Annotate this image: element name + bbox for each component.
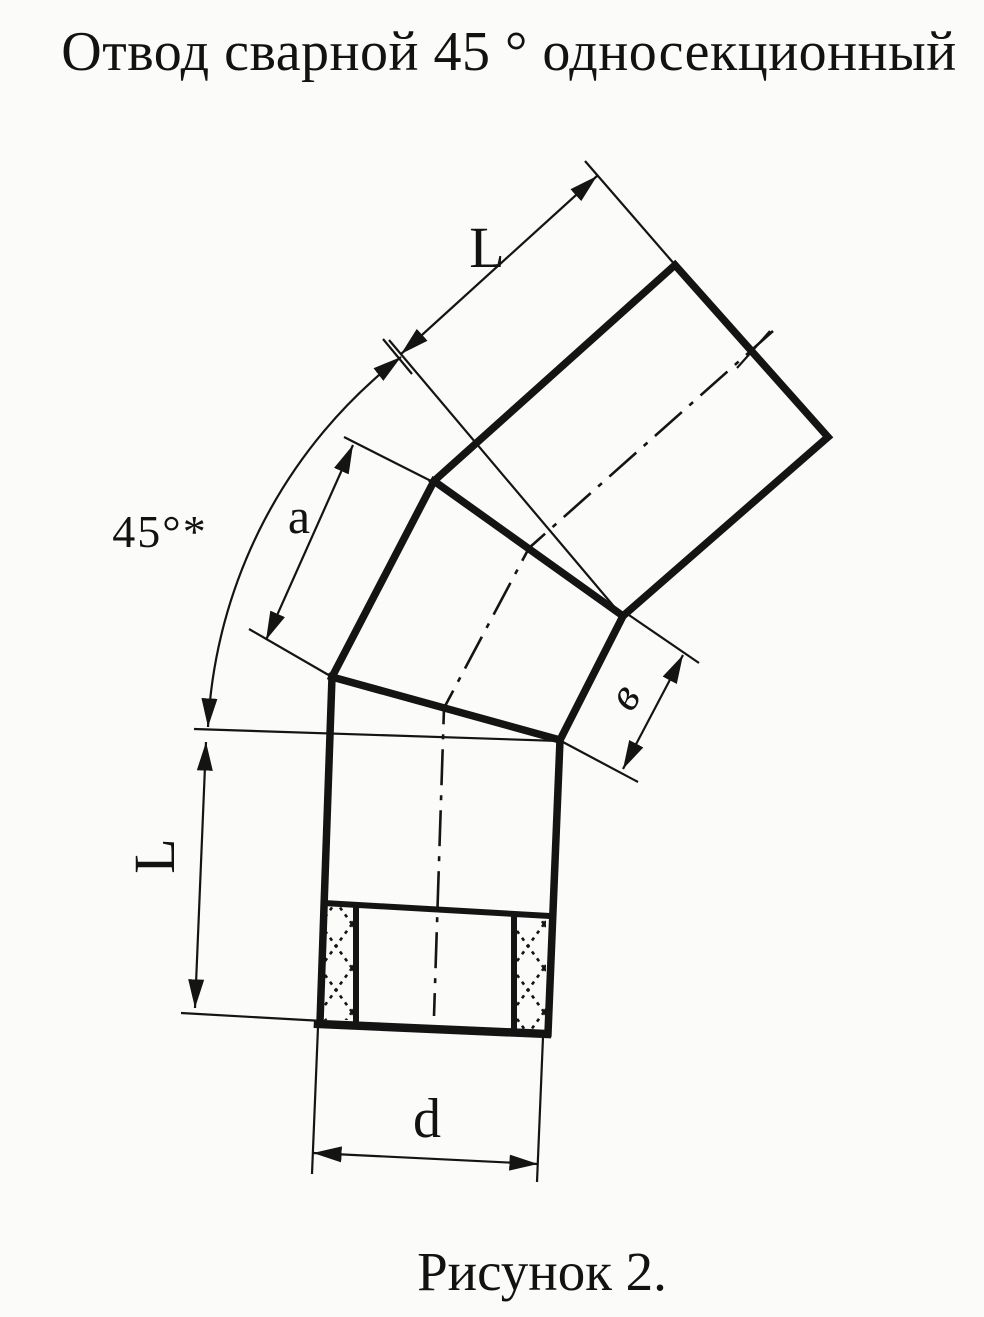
ext-left-length-bottom	[181, 1013, 323, 1021]
label-section-a: a	[288, 488, 310, 544]
label-diameter: d	[413, 1088, 441, 1150]
ext-width-upper	[626, 613, 699, 663]
label-side-width: в	[597, 675, 651, 719]
scanned-drawing-page: Отвод сварной 45 ° односекционный	[0, 0, 984, 1317]
elbow-diagram: L 45°* a в L d	[0, 0, 984, 1317]
pipe-outlines	[318, 265, 828, 1034]
figure-caption: Рисунок 2.	[417, 1240, 667, 1303]
ext-a-lower	[249, 629, 332, 677]
dim-line-left-length	[195, 742, 206, 1008]
label-left-length: L	[122, 838, 187, 873]
ext-left-length-top	[194, 729, 560, 741]
dim-line-diameter	[313, 1153, 538, 1164]
upper-pipe-section	[434, 265, 828, 616]
ext-top-length-upper	[585, 161, 676, 266]
ext-a-upper	[344, 437, 433, 482]
ext-diameter-right	[537, 1037, 543, 1182]
ext-diameter-left	[312, 1027, 318, 1174]
label-angle: 45°*	[112, 506, 207, 557]
label-top-length: L	[469, 215, 504, 280]
pipe-wall-hatch-right	[516, 919, 546, 1030]
middle-pipe-section	[332, 481, 623, 740]
